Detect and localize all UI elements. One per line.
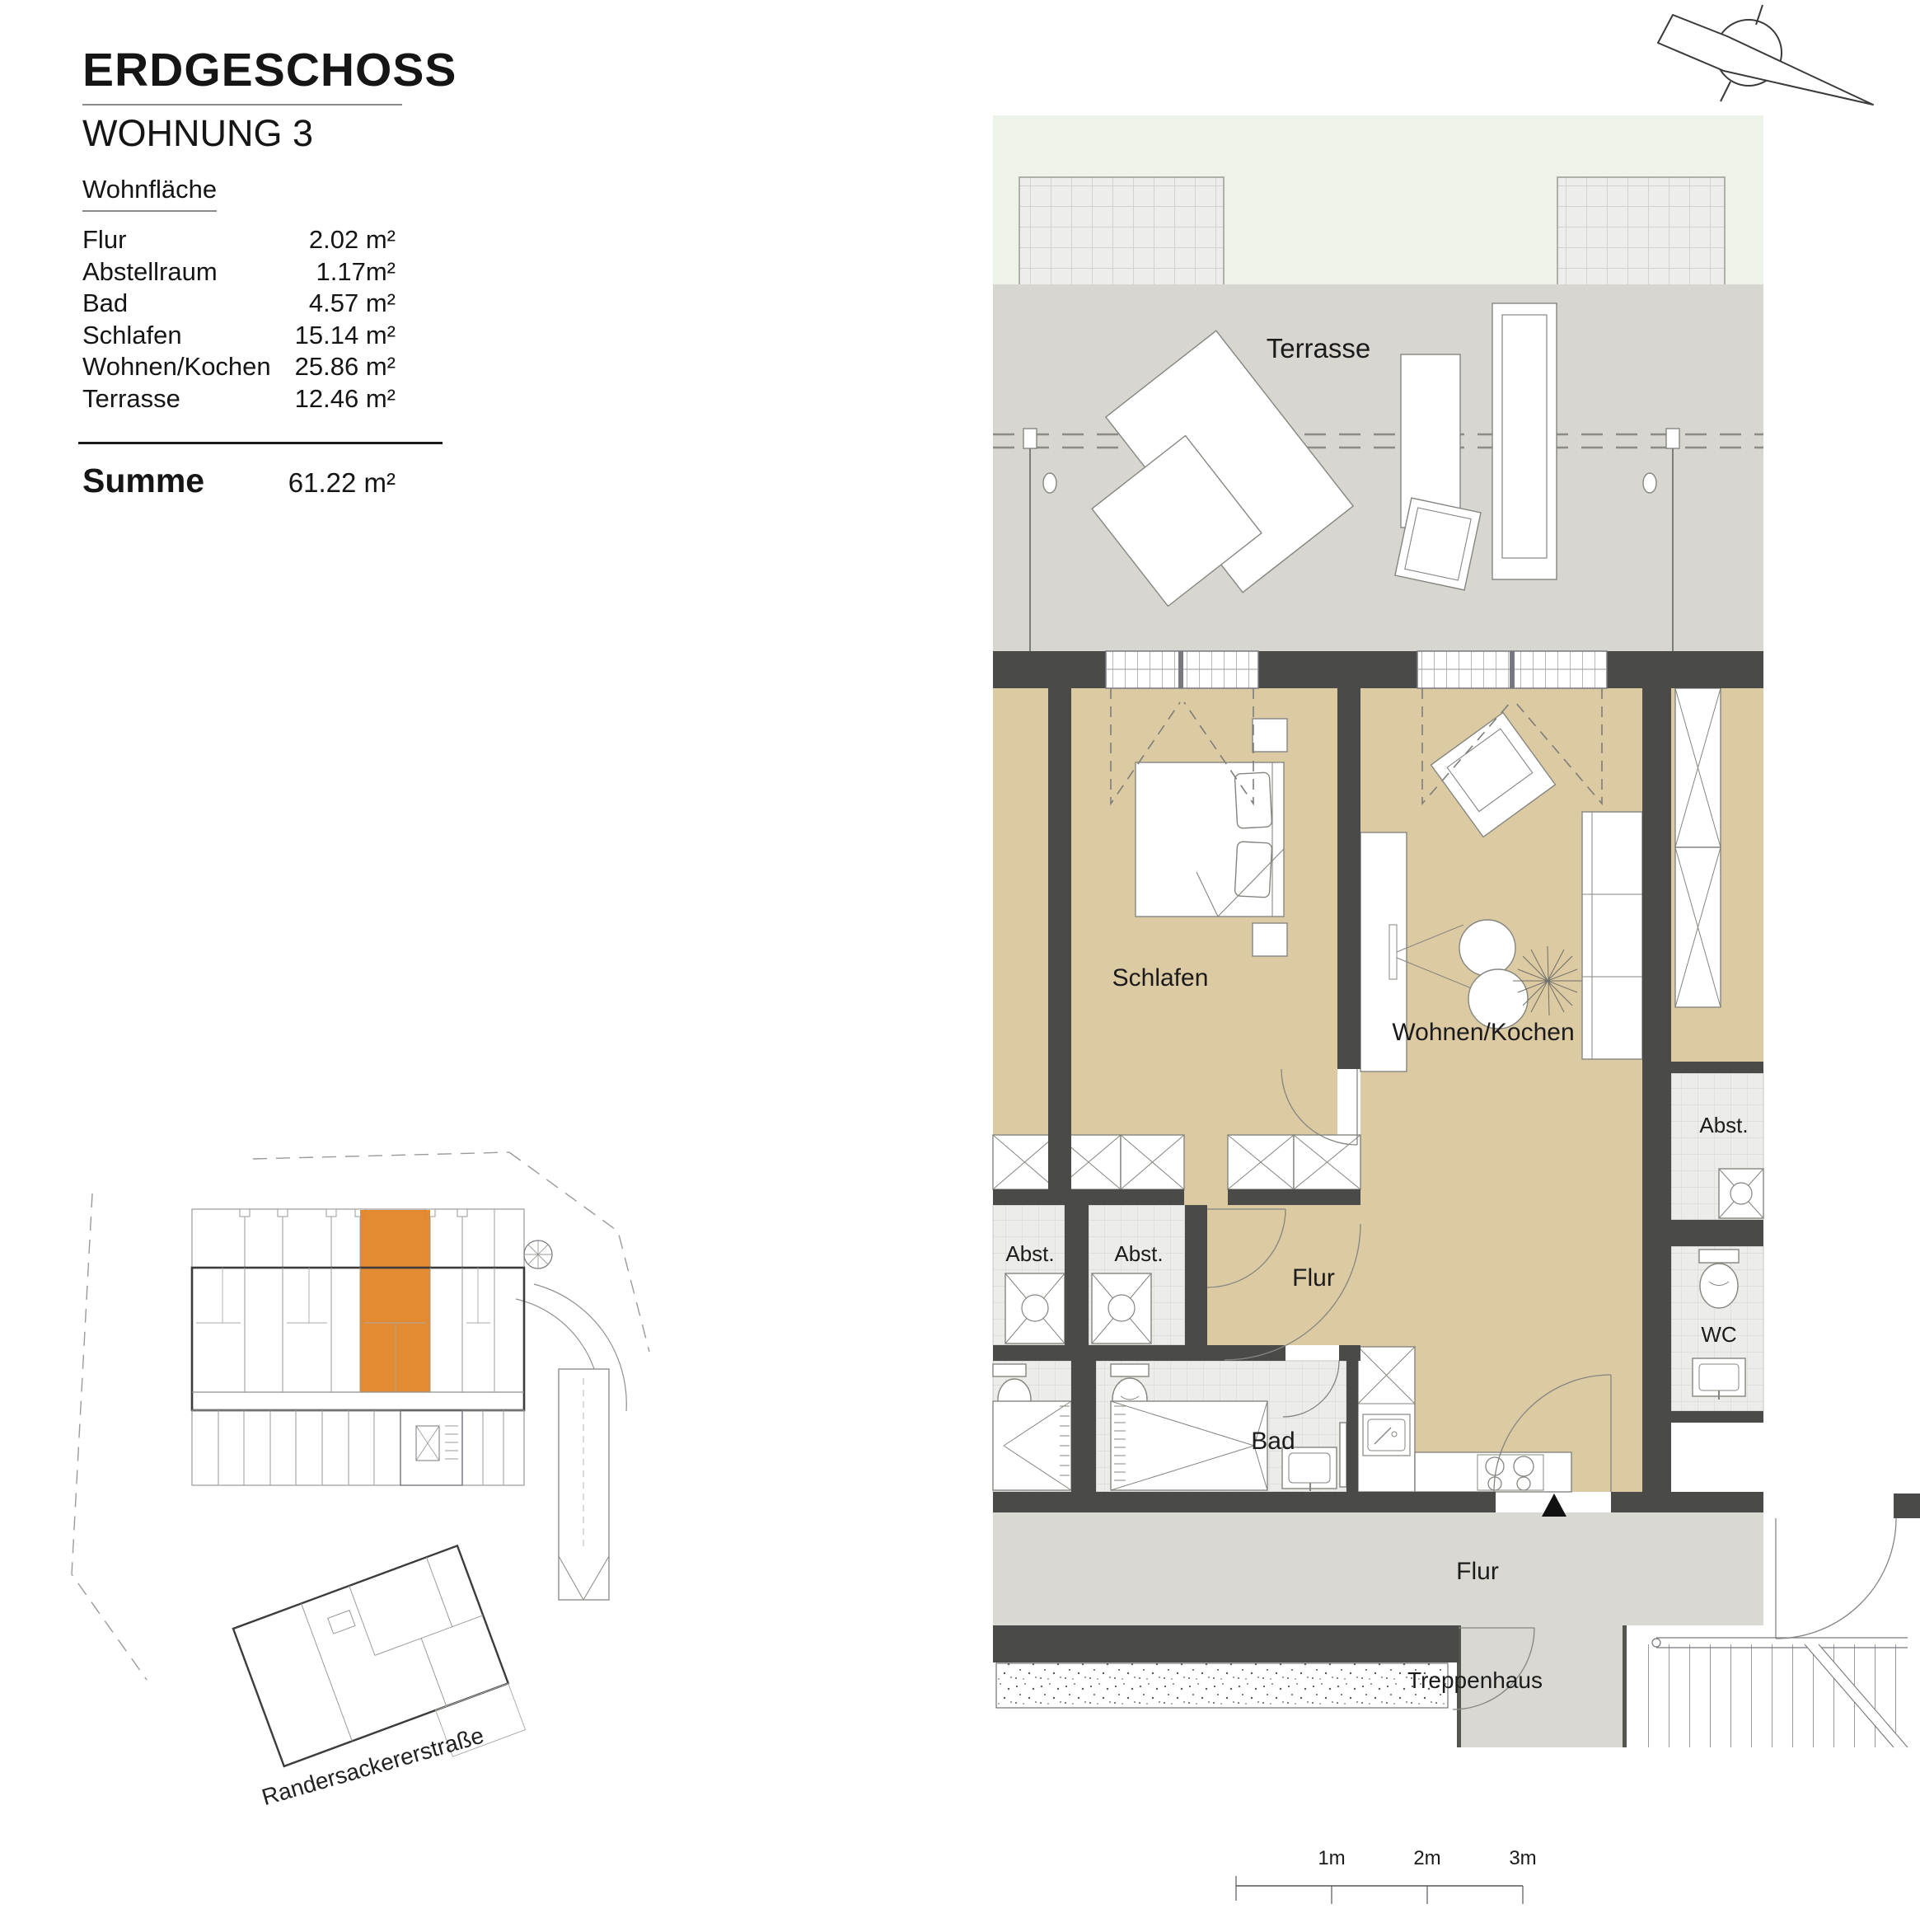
row-label: Wohnen/Kochen: [82, 351, 271, 383]
scale-label-2m: 2m: [1413, 1847, 1440, 1869]
gravel-strip: [996, 1663, 1448, 1708]
row-value: 25.86 m²: [295, 351, 396, 383]
row-label: Terrasse: [82, 383, 180, 415]
parking-dividers: [218, 1410, 374, 1485]
room-label-schlafen: Schlafen: [1112, 964, 1209, 992]
row-value: 1.17m²: [316, 256, 396, 288]
nightstand: [1253, 719, 1287, 752]
room-label-abst-left: Abst.: [1005, 1241, 1054, 1266]
floor-plan: Terrasse: [985, 0, 1920, 1932]
building-entrance-door: [1776, 1494, 1920, 1639]
table-row: Abstellraum 1.17m²: [82, 256, 396, 288]
title-underline: [82, 104, 402, 106]
site-plan: Randersackererstraße: [49, 1146, 651, 1805]
apartment-subtitle: WOHNUNG 3: [82, 112, 313, 155]
room-label-bad: Bad: [1251, 1428, 1295, 1455]
common-corridor: [993, 1512, 1763, 1625]
parcel-boundary: [509, 1152, 649, 1352]
sofa: [1582, 812, 1642, 1059]
unit-interior-lines: [196, 1268, 490, 1392]
north-arrow-icon: [1658, 5, 1873, 105]
main-building-outline: [192, 1268, 524, 1410]
sum-label: Summe: [82, 462, 204, 500]
passage-floor: [1184, 1135, 1228, 1205]
nightstand: [1253, 923, 1287, 956]
entrance-arrow-icon: [1542, 1494, 1566, 1517]
terrace-area: [993, 284, 1763, 651]
shaft-wall: [1623, 1625, 1627, 1747]
niche-wardrobe: [1675, 688, 1721, 1007]
row-label: Abstellraum: [82, 256, 218, 288]
room-label-wc: WC: [1701, 1322, 1736, 1347]
scale-bar: 1m 2m 3m: [1236, 1847, 1537, 1904]
table-row: Flur 2.02 m²: [82, 224, 396, 256]
room-label-flur-common: Flur: [1456, 1558, 1499, 1585]
room-label-terrasse: Terrasse: [1267, 333, 1371, 363]
room-label-wohnen-kochen: Wohnen/Kochen: [1392, 1019, 1574, 1046]
sun-lounger: [1492, 303, 1557, 579]
room-label-flur: Flur: [1292, 1264, 1335, 1292]
window: [1417, 651, 1607, 688]
row-label: Flur: [82, 224, 126, 256]
washer: [1719, 1169, 1763, 1218]
room-label-treppenhaus: Treppenhaus: [1407, 1667, 1543, 1693]
area-table: Flur 2.02 m² Abstellraum 1.17m² Bad 4.57…: [82, 224, 396, 415]
garden-strip: [192, 1209, 524, 1268]
scale-label-3m: 3m: [1509, 1847, 1536, 1869]
room-label-abst-mid: Abst.: [1114, 1241, 1163, 1266]
table-row: Wohnen/Kochen 25.86 m²: [82, 351, 396, 383]
room-label-abst-right: Abst.: [1699, 1113, 1748, 1137]
garage: [559, 1369, 609, 1600]
sum-divider: [78, 442, 443, 444]
site-stair-shaft: [400, 1410, 462, 1485]
staircase: [1640, 1638, 1908, 1747]
planter: [1557, 177, 1725, 286]
table-row: Schlafen 15.14 m²: [82, 320, 396, 352]
wardrobe-row: [993, 1135, 1360, 1189]
row-value: 4.57 m²: [309, 288, 396, 320]
table-row: Terrasse 12.46 m²: [82, 383, 396, 415]
area-table-heading: Wohnfläche: [82, 175, 217, 212]
planter: [1019, 177, 1224, 286]
bed: [1136, 762, 1284, 917]
highlighted-unit[interactable]: [360, 1210, 430, 1392]
table-row: Bad 4.57 m²: [82, 288, 396, 320]
row-value: 2.02 m²: [309, 224, 396, 256]
parking-row: [462, 1410, 524, 1485]
row-value: 12.46 m²: [295, 383, 396, 415]
sum-row: Summe 61.22 m²: [82, 462, 396, 500]
row-label: Bad: [82, 288, 128, 320]
side-table: [1459, 920, 1515, 976]
scale-label-1m: 1m: [1318, 1847, 1345, 1869]
washer: [1005, 1273, 1065, 1343]
spiral-stair: [524, 1240, 552, 1268]
sum-value: 61.22 m²: [288, 467, 396, 499]
floorplan-sheet: { "header": { "title": "ERDGESCHOSS", "s…: [0, 0, 1920, 1932]
washer: [1092, 1273, 1151, 1343]
parcel-boundary: [253, 1152, 509, 1159]
page-title: ERDGESCHOSS: [82, 43, 457, 97]
window: [1106, 651, 1258, 688]
row-value: 15.14 m²: [295, 320, 396, 352]
row-label: Schlafen: [82, 320, 182, 352]
parcel-boundary: [72, 1193, 147, 1680]
